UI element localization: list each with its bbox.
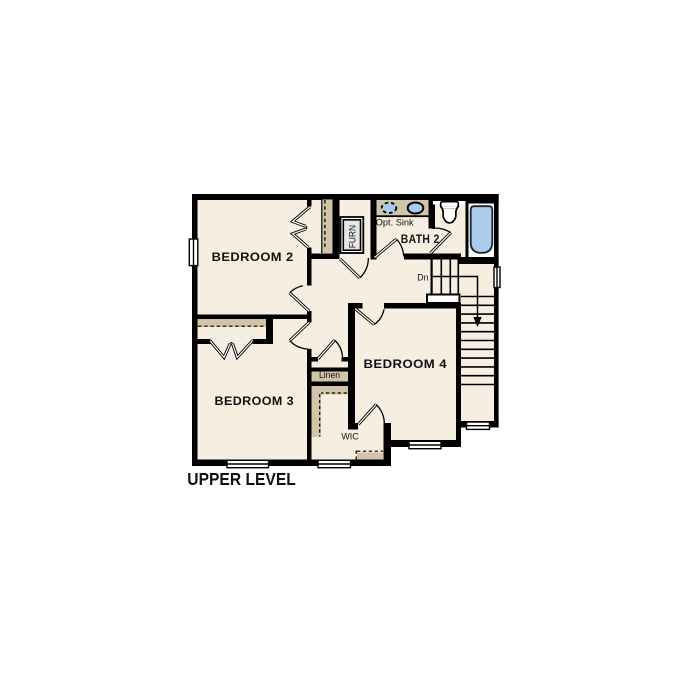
svg-text:Opt. Sink: Opt. Sink [376, 218, 414, 229]
svg-text:BEDROOM 3: BEDROOM 3 [215, 394, 295, 408]
svg-text:FURN: FURN [348, 225, 359, 249]
svg-text:UPPER LEVEL: UPPER LEVEL [187, 469, 296, 489]
svg-text:BATH 2: BATH 2 [401, 232, 440, 246]
svg-text:Dn: Dn [417, 272, 428, 283]
svg-text:BEDROOM 4: BEDROOM 4 [364, 357, 448, 371]
svg-text:WIC: WIC [341, 432, 358, 443]
svg-text:BEDROOM 2: BEDROOM 2 [212, 250, 294, 264]
svg-text:Linen: Linen [319, 370, 340, 381]
